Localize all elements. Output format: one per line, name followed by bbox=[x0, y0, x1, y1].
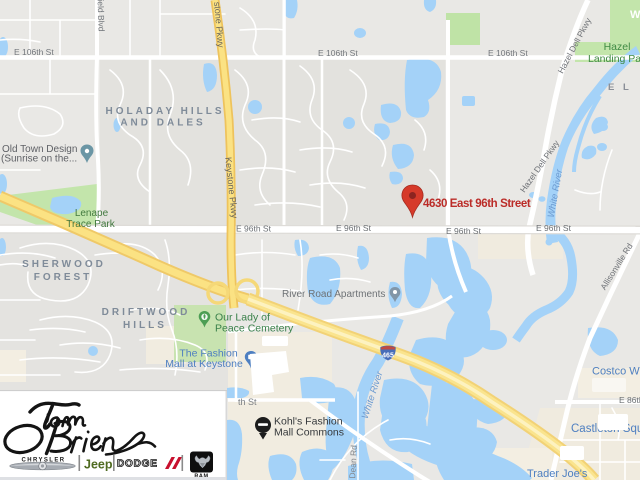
svg-text:Mall Commons: Mall Commons bbox=[274, 427, 344, 439]
svg-text:Trace Park: Trace Park bbox=[66, 219, 116, 230]
svg-text:SHERWOOD: SHERWOOD bbox=[22, 259, 106, 270]
svg-text:Costco Who: Costco Who bbox=[592, 366, 640, 378]
svg-text:465: 465 bbox=[382, 353, 394, 360]
svg-text:E 96th St: E 96th St bbox=[336, 223, 372, 233]
svg-text:E 96th St: E 96th St bbox=[536, 223, 572, 233]
svg-text:E 106th St: E 106th St bbox=[318, 48, 358, 58]
svg-text:Peace Cemetery: Peace Cemetery bbox=[215, 323, 294, 335]
svg-text:th St: th St bbox=[238, 397, 257, 407]
svg-text:(Sunrise on the...: (Sunrise on the... bbox=[1, 154, 77, 165]
svg-text:DODGE: DODGE bbox=[117, 459, 158, 470]
svg-text:W: W bbox=[630, 9, 640, 21]
svg-text:FOREST: FOREST bbox=[34, 272, 93, 283]
svg-text:Mall at Keystone: Mall at Keystone bbox=[165, 358, 243, 370]
svg-text:4630 East 96th Street: 4630 East 96th Street bbox=[423, 198, 531, 210]
svg-text:E 96th St: E 96th St bbox=[236, 224, 272, 234]
svg-text:AND DALES: AND DALES bbox=[120, 118, 205, 129]
svg-text:Hazel: Hazel bbox=[604, 41, 631, 53]
svg-text:DRIFTWOOD: DRIFTWOOD bbox=[102, 307, 191, 318]
svg-text:River Road Apartments: River Road Apartments bbox=[282, 289, 385, 300]
svg-text:E 96th St: E 96th St bbox=[446, 226, 482, 236]
svg-text:E 106th St: E 106th St bbox=[14, 47, 54, 57]
svg-text:hfield Blvd: hfield Blvd bbox=[95, 0, 106, 32]
svg-text:Landing Par: Landing Par bbox=[588, 53, 640, 65]
svg-text:HOLADAY HILLS: HOLADAY HILLS bbox=[105, 106, 224, 117]
svg-text:E L: E L bbox=[608, 82, 632, 93]
svg-text:Trader Joe's: Trader Joe's bbox=[527, 468, 588, 480]
svg-text:HILLS: HILLS bbox=[123, 320, 167, 331]
svg-text:Lenape: Lenape bbox=[75, 208, 109, 219]
svg-text:Dean Rd: Dean Rd bbox=[347, 445, 359, 479]
svg-text:Jeep: Jeep bbox=[84, 458, 113, 472]
svg-text:E 106th St: E 106th St bbox=[488, 48, 528, 58]
svg-text:E 86th: E 86th bbox=[619, 395, 640, 405]
